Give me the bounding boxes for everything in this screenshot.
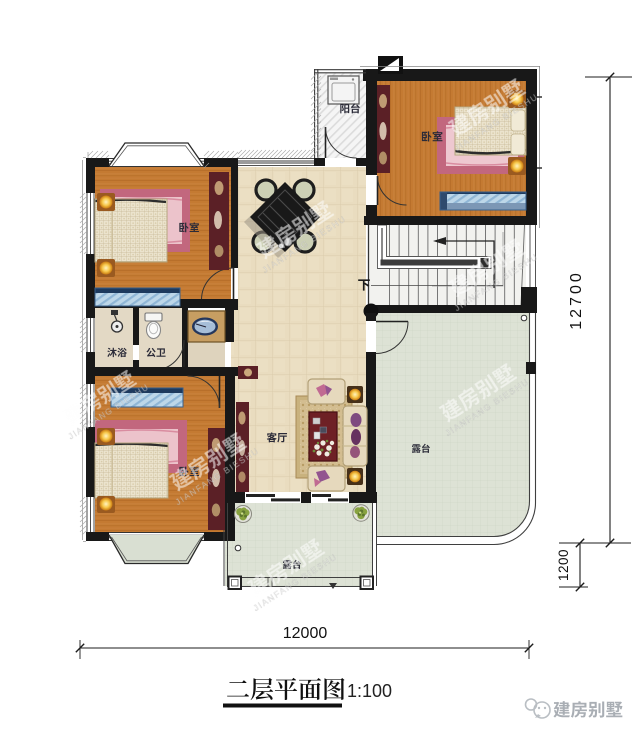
svg-text:1200: 1200 xyxy=(556,549,571,581)
svg-text:12700: 12700 xyxy=(568,270,585,330)
svg-text:12000: 12000 xyxy=(283,625,328,642)
svg-text:1:100: 1:100 xyxy=(347,681,392,701)
